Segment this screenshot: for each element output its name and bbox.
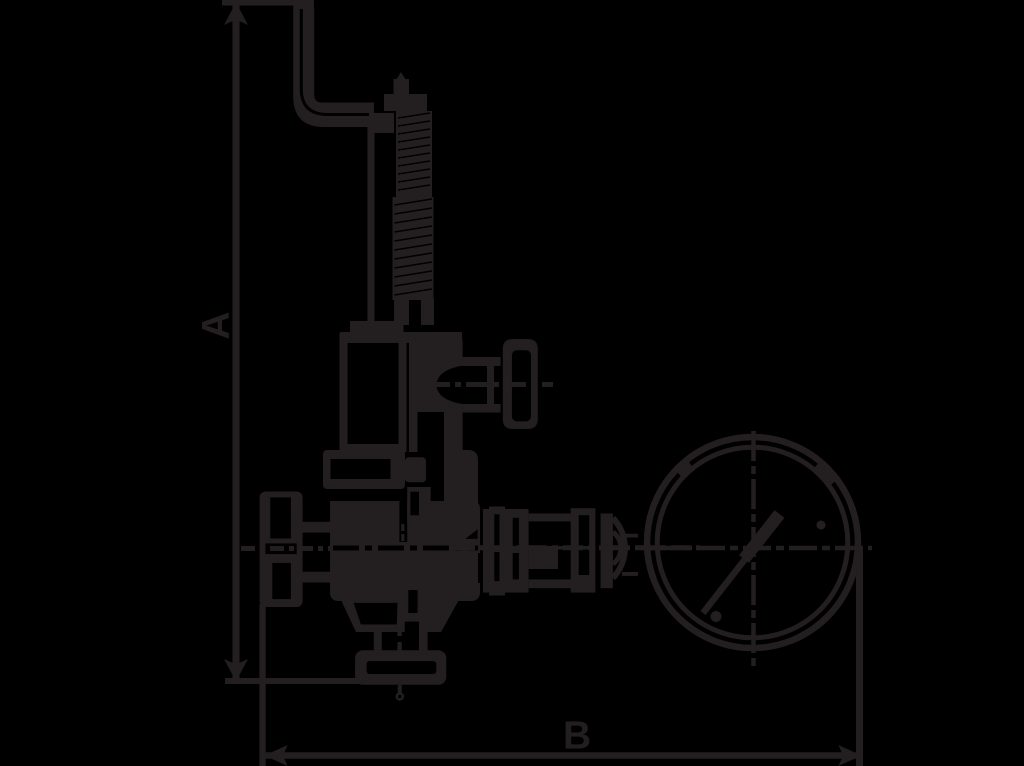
svg-text:B: B: [563, 715, 591, 758]
svg-text:A: A: [195, 311, 238, 339]
